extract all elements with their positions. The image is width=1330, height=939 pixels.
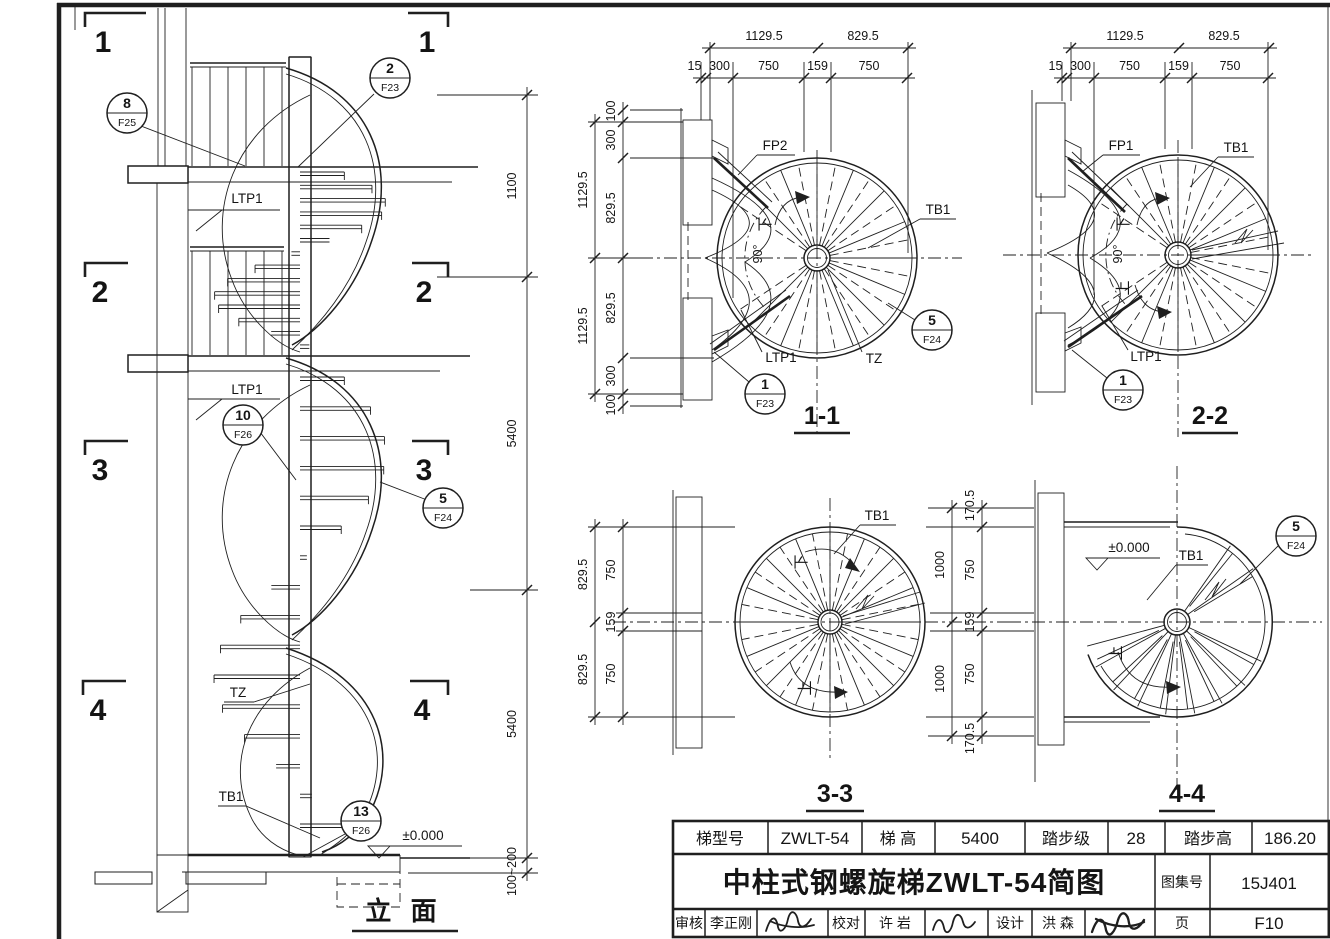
tread-line: [755, 572, 820, 615]
section-marker-4-left: 4: [90, 694, 107, 727]
callout-13-F26: 13 F26: [303, 801, 381, 857]
label-fp2: FP2: [763, 138, 788, 153]
spiral-rail-back-3: [240, 668, 310, 855]
drawing-canvas: 110054005400100~2001129.5829.51530075015…: [0, 0, 1330, 939]
section-marker-bracket: [85, 263, 128, 277]
callout-page-ref: F26: [234, 429, 252, 441]
callout-number: 10: [235, 407, 251, 423]
section-marker-bracket: [412, 263, 448, 277]
callout-page-ref: F23: [1114, 394, 1132, 406]
dim-label: 5400: [505, 710, 519, 738]
label-tb1: TB1: [1179, 548, 1204, 563]
page-number: F10: [1254, 914, 1283, 933]
sheet-frame: [57, 3, 1330, 939]
spiral-rail-back-1: [222, 95, 310, 352]
tread-line: [738, 265, 806, 311]
dim-label: 829.5: [576, 559, 590, 590]
section-marker-bracket: [412, 441, 448, 455]
label-up: 上: [797, 680, 814, 695]
label-ltp1-lower: LTP1: [231, 382, 262, 397]
designer-name: 洪 森: [1042, 915, 1074, 931]
label-angle: 90°: [751, 245, 765, 264]
tread-line: [1194, 632, 1253, 665]
field-stair-height-label: 梯 高: [880, 830, 916, 848]
tread-line: [838, 630, 893, 685]
page-label: 页: [1175, 915, 1189, 931]
plan-3-3: [673, 490, 925, 755]
callout-number: 13: [353, 803, 369, 819]
dim-label: 5400: [505, 420, 519, 448]
section-marker-bracket: [408, 13, 448, 27]
tread-line: [1183, 167, 1214, 243]
dim-label: 159: [604, 612, 618, 633]
dim-label: 829.5: [604, 192, 618, 223]
section-marker-1-right: 1: [419, 26, 436, 59]
plan11-wall-upper: [683, 120, 712, 225]
label-down: 下: [793, 554, 810, 569]
dim-label: 100: [604, 101, 618, 122]
proofreader-name: 许 岩: [879, 915, 911, 931]
callout-number: 1: [1119, 372, 1127, 388]
direction-arrow: [795, 191, 810, 204]
tread-line: [829, 263, 905, 294]
dim-label: 300: [1070, 59, 1091, 73]
label-down: 下: [757, 216, 774, 231]
dim-label: 750: [604, 664, 618, 685]
dim-label: 750: [758, 59, 779, 73]
label-level-zero: ±0.000: [402, 828, 443, 843]
plan22-bracket-upper: [1065, 140, 1081, 164]
tread-line: [781, 270, 812, 346]
reviewer-name: 李正刚: [710, 915, 752, 931]
tread-line: [822, 170, 853, 246]
field-stair-model-label: 梯型号: [696, 830, 744, 848]
callout-number: 8: [123, 95, 131, 111]
label-ltp1: LTP1: [1130, 349, 1161, 364]
label-tb1: TB1: [219, 789, 244, 804]
plan33-wall: [676, 497, 702, 748]
dim-label: 15: [1049, 59, 1063, 73]
tread-line: [1134, 639, 1167, 698]
dim-label: 300: [709, 59, 730, 73]
section-marker-bracket: [85, 13, 146, 27]
plan-4-4: [1035, 480, 1272, 782]
direction-arrow: [1155, 192, 1170, 205]
dim-label: 1000: [933, 551, 947, 579]
tread-line: [1188, 569, 1254, 615]
tread-line: [840, 572, 905, 615]
tread-line: [837, 547, 880, 612]
ground-hatch: [95, 872, 152, 884]
atlas-number-label: 图集号: [1161, 874, 1203, 890]
section-marker-4-right: 4: [414, 694, 431, 727]
dim-label: 300: [604, 130, 618, 151]
section-marker-1-left: 1: [95, 26, 112, 59]
dim-label: 100~200: [505, 847, 519, 896]
label-tz: TZ: [230, 685, 247, 700]
title-block: 梯型号 ZWLT-54 梯 高 5400 踏步级 28 踏步高 186.20 中…: [673, 821, 1329, 937]
callout-5-F24-plan11: 5 F24: [888, 303, 952, 350]
label-up: 上: [1108, 645, 1125, 660]
label-angle: 90°: [1111, 245, 1125, 264]
signature-scribble-proofreader: [933, 915, 975, 932]
callout-page-ref: F25: [118, 117, 136, 129]
tread-line: [1190, 219, 1266, 250]
tread-line: [1160, 642, 1173, 709]
dim-label: 1129.5: [576, 171, 590, 208]
label-tz: TZ: [866, 351, 883, 366]
tread-line: [1187, 264, 1245, 322]
designer-label: 设计: [996, 915, 1024, 931]
signature-scribble-reviewer: [766, 912, 814, 931]
tread-line: [755, 629, 820, 672]
section-marker-3-left: 3: [92, 454, 109, 487]
elevation-wall-below-grade: [157, 855, 188, 912]
callout-page-ref: F26: [352, 825, 370, 837]
tread-line: [1183, 267, 1214, 343]
plan33-title: 3-3: [817, 780, 853, 808]
center-column-mask: [289, 57, 311, 857]
label-fp1: FP1: [1109, 138, 1134, 153]
dim-label: 170.5: [963, 723, 977, 754]
dim-label: 1129.5: [1106, 29, 1143, 43]
dim-label: 750: [963, 560, 977, 581]
dim-label: 15: [688, 59, 702, 73]
tread-line: [822, 270, 853, 346]
tread-line: [1187, 188, 1245, 246]
section-marker-3-right: 3: [416, 454, 433, 487]
label-tb1: TB1: [926, 202, 951, 217]
dim-label: 829.5: [1208, 29, 1239, 43]
section-marker-2-right: 2: [416, 276, 433, 309]
dim-label: 750: [859, 59, 880, 73]
plan11-bracket-upper: [712, 140, 728, 164]
level-symbol-triangle: [1086, 558, 1108, 570]
signature-scribble-designer: [1092, 913, 1144, 934]
tread-line: [1138, 634, 1172, 707]
dim-label: 1000: [933, 665, 947, 693]
dim-label: 1129.5: [576, 307, 590, 344]
tread-line: [826, 191, 884, 249]
dim-label: 300: [604, 366, 618, 387]
tread-line: [840, 629, 905, 672]
direction-arrow: [1157, 306, 1172, 319]
callout-10-F26: 10 F26: [223, 405, 296, 480]
ground-hatch: [186, 872, 266, 884]
plan11-wall-lower: [683, 298, 712, 400]
callout-page-ref: F24: [923, 334, 941, 346]
section-marker-bracket: [83, 681, 126, 695]
dim-label: 1129.5: [745, 29, 782, 43]
plan22-wall-upper: [1036, 103, 1065, 197]
callout-5-F24-elevation: 5 F24: [380, 482, 463, 528]
dim-label: 750: [604, 560, 618, 581]
dim-label: 829.5: [847, 29, 878, 43]
tread-line: [1179, 642, 1187, 709]
section-marker-2-left: 2: [92, 276, 109, 309]
callout-page-ref: F24: [434, 512, 452, 524]
label-up: 上: [1115, 280, 1132, 295]
section-marker-bracket: [85, 441, 128, 455]
field-stair-height-value: 5400: [961, 829, 999, 848]
tread-line: [829, 222, 905, 253]
label-down: 下: [1115, 216, 1132, 231]
callout-number: 1: [761, 376, 769, 392]
tread-line: [1190, 260, 1266, 291]
dim-label: 829.5: [576, 654, 590, 685]
annotation-layer: 1 1 2 2 3 3 4 4 8 F25 2 F23 10: [83, 13, 1329, 937]
label-ltp1: LTP1: [765, 350, 796, 365]
tread-line: [766, 630, 821, 685]
dim-label: 159: [1168, 59, 1189, 73]
callout-number: 5: [1292, 518, 1300, 534]
field-stair-model-value: ZWLT-54: [781, 829, 850, 848]
label-level-zero: ±0.000: [1108, 540, 1149, 555]
drawing-sheet: 110054005400100~2001129.5829.51530075015…: [0, 0, 1330, 939]
dim-label: 750: [963, 664, 977, 685]
dim-label: 750: [1119, 59, 1140, 73]
callout-number: 5: [439, 490, 447, 506]
direction-arrow: [845, 558, 860, 572]
callout-8-F25: 8 F25: [107, 93, 245, 166]
tread-line: [781, 170, 812, 246]
plan22-wall-lower: [1036, 313, 1065, 392]
callout-page-ref: F23: [756, 398, 774, 410]
tread-line: [837, 632, 880, 697]
dim-label: 100: [604, 395, 618, 416]
label-tb1: TB1: [1224, 140, 1249, 155]
field-riser-height-value: 186.20: [1264, 829, 1316, 848]
plan44-wall: [1038, 493, 1064, 745]
tread-line: [826, 267, 884, 325]
label-tb1: TB1: [865, 508, 890, 523]
tread-line: [1189, 627, 1262, 661]
callout-2-F23: 2 F23: [298, 58, 410, 167]
tread-line: [1185, 640, 1214, 702]
field-riser-height-label: 踏步高: [1184, 830, 1232, 848]
atlas-number-value: 15J401: [1241, 874, 1297, 893]
dim-label: 159: [963, 612, 977, 633]
tread-line: [750, 267, 808, 325]
proofreader-label: 校对: [832, 915, 860, 931]
landing-slab-lower: [128, 355, 188, 372]
plan11-title: 1-1: [804, 402, 840, 430]
dim-label: 1100: [505, 173, 519, 200]
plan22-title: 2-2: [1192, 402, 1228, 430]
dim-label: 170.5: [963, 490, 977, 521]
plan44-title: 4-4: [1169, 780, 1205, 808]
callout-number: 5: [928, 312, 936, 328]
landing-slab-upper: [128, 166, 188, 183]
callout-page-ref: F23: [381, 82, 399, 94]
dim-label: 750: [1220, 59, 1241, 73]
callout-number: 2: [386, 60, 394, 76]
tread-line: [1187, 631, 1246, 686]
direction-arrow: [834, 686, 848, 699]
tread-line: [1191, 637, 1237, 687]
dim-label: 829.5: [604, 292, 618, 323]
drawing-main-title: 中柱式钢螺旋梯ZWLT-54简图: [723, 866, 1106, 898]
callout-page-ref: F24: [1287, 540, 1305, 552]
field-step-count-label: 踏步级: [1042, 830, 1090, 848]
elevation-title: 立 面: [365, 896, 442, 926]
section-marker-bracket: [410, 681, 448, 695]
label-ltp1-upper: LTP1: [231, 191, 262, 206]
field-step-count-value: 28: [1127, 829, 1146, 848]
dim-label: 159: [807, 59, 828, 73]
tread-line: [1099, 202, 1167, 248]
elevation-wall-hatch: [157, 183, 188, 855]
reviewer-label: 审核: [675, 915, 703, 931]
